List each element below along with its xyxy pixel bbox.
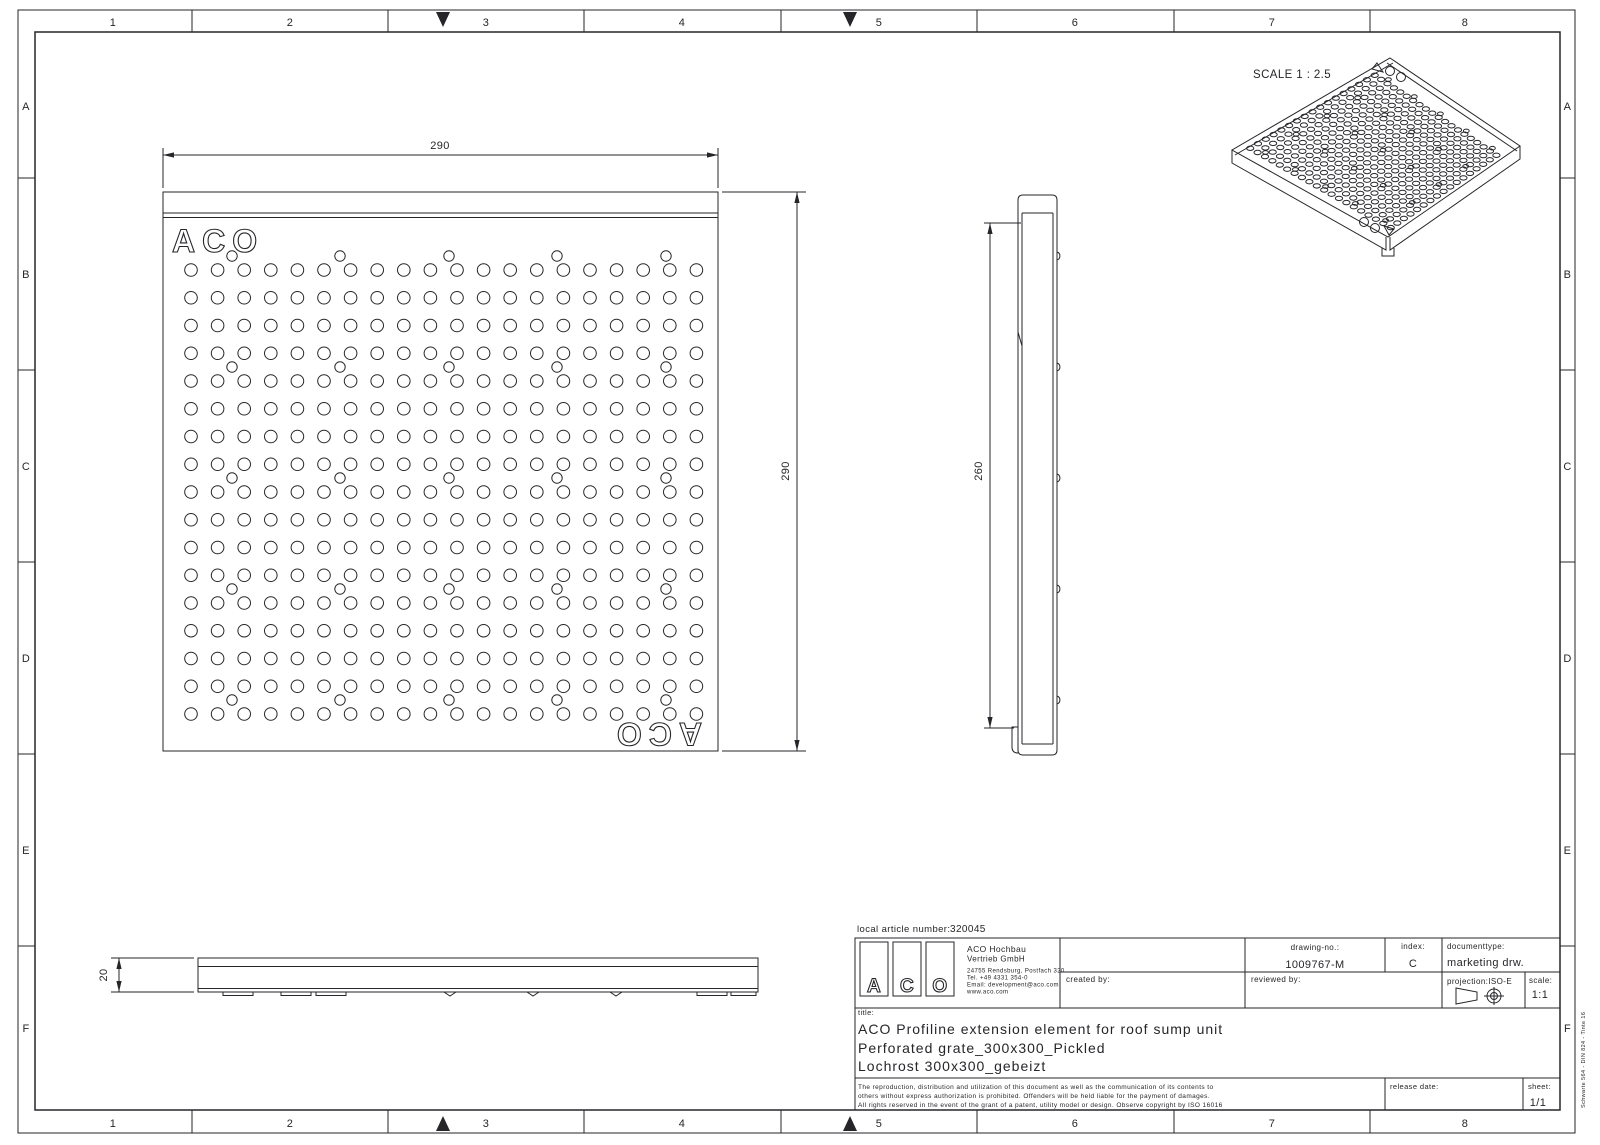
iso-hole xyxy=(1440,163,1447,167)
title-line: Perforated grate_300x300_Pickled xyxy=(858,1040,1106,1056)
iso-hole xyxy=(1395,107,1402,111)
hole xyxy=(477,708,490,721)
isometric-view: SCALE 1 : 2.5 xyxy=(1232,58,1520,256)
plot-stamp: Schwarte 564 - DIN 824 - Tinte 16 xyxy=(1581,1012,1587,1108)
border-column-label: 8 xyxy=(1462,1118,1469,1130)
hole xyxy=(557,597,570,610)
iso-hole xyxy=(1352,117,1359,121)
hole xyxy=(504,402,517,415)
side-view: 260 xyxy=(973,195,1060,755)
iso-hole xyxy=(1352,109,1359,113)
iso-hole xyxy=(1328,148,1335,152)
hole xyxy=(610,458,623,471)
hole xyxy=(690,597,703,610)
front-outline xyxy=(198,958,758,992)
iso-hole xyxy=(1447,132,1454,136)
iso-hole xyxy=(1335,179,1342,183)
iso-hole xyxy=(1392,195,1399,199)
hole xyxy=(211,624,224,637)
iso-hole xyxy=(1385,173,1392,177)
hole xyxy=(344,652,357,665)
hole xyxy=(557,291,570,304)
iso-hole xyxy=(1371,147,1378,151)
iso-hole xyxy=(1419,168,1426,172)
hole xyxy=(690,541,703,554)
hole xyxy=(398,347,411,360)
iso-hole xyxy=(1371,165,1378,169)
iso-hole xyxy=(1493,153,1500,157)
company-name: ACO Hochbau xyxy=(967,944,1026,954)
iso-hole xyxy=(1447,185,1454,189)
projection-label: projection:ISO-E xyxy=(1447,977,1512,986)
iso-hole xyxy=(1440,154,1447,158)
hole xyxy=(664,347,677,360)
hole xyxy=(584,680,597,693)
iso-scale-label: SCALE 1 : 2.5 xyxy=(1253,69,1331,81)
hole xyxy=(238,430,251,443)
iso-hole xyxy=(1284,150,1291,154)
hole xyxy=(451,291,464,304)
offset-hole xyxy=(335,473,345,483)
hole xyxy=(477,486,490,499)
iso-hole xyxy=(1262,137,1269,141)
hole xyxy=(584,541,597,554)
hole xyxy=(504,291,517,304)
hole xyxy=(610,319,623,332)
hole xyxy=(344,624,357,637)
hole xyxy=(371,486,384,499)
iso-hole xyxy=(1330,122,1337,126)
hole xyxy=(477,569,490,582)
hole xyxy=(424,402,437,415)
iso-logo-shape xyxy=(1397,73,1406,82)
hole xyxy=(690,319,703,332)
hole xyxy=(477,541,490,554)
iso-right-lip xyxy=(1390,146,1520,250)
iso-hole xyxy=(1269,150,1276,154)
iso-hole xyxy=(1406,151,1413,155)
iso-logo-shape xyxy=(1386,67,1395,76)
fold-mark-triangle xyxy=(436,12,450,27)
iso-hole xyxy=(1392,177,1399,181)
hole xyxy=(637,652,650,665)
iso-hole xyxy=(1466,171,1473,175)
iso-hole xyxy=(1427,129,1434,133)
iso-hole xyxy=(1299,140,1306,144)
hole xyxy=(318,652,331,665)
hole xyxy=(211,430,224,443)
legal-text-line: The reproduction, distribution and utili… xyxy=(858,1084,1213,1091)
hole xyxy=(185,513,198,526)
hole xyxy=(690,375,703,388)
iso-hole xyxy=(1393,212,1400,216)
hole xyxy=(584,291,597,304)
iso-hole xyxy=(1378,77,1385,81)
hole xyxy=(504,430,517,443)
hole xyxy=(637,513,650,526)
iso-hole xyxy=(1422,107,1429,111)
iso-hole xyxy=(1291,154,1298,158)
iso-hole xyxy=(1428,120,1435,124)
hole xyxy=(291,375,304,388)
iso-hole xyxy=(1328,175,1335,179)
iso-hole xyxy=(1403,94,1410,98)
dimension-value: 290 xyxy=(780,461,792,481)
legal-text-line: others without express authorization is … xyxy=(858,1093,1210,1100)
hole xyxy=(344,319,357,332)
title-line: ACO Profiline extension element for roof… xyxy=(858,1021,1223,1037)
iso-hole xyxy=(1415,111,1422,115)
iso-hole xyxy=(1410,98,1417,102)
iso-hole xyxy=(1324,109,1331,113)
hole xyxy=(344,347,357,360)
iso-hole xyxy=(1385,191,1392,195)
hole xyxy=(610,291,623,304)
border-column-label: 4 xyxy=(679,17,686,29)
hole xyxy=(291,680,304,693)
index-value: C xyxy=(1409,958,1417,970)
hole xyxy=(531,569,544,582)
iso-hole xyxy=(1473,158,1480,162)
iso-hole xyxy=(1371,182,1378,186)
offset-hole xyxy=(227,584,237,594)
hole xyxy=(211,347,224,360)
hole xyxy=(238,458,251,471)
iso-hole xyxy=(1453,163,1460,167)
hole xyxy=(291,513,304,526)
hole xyxy=(584,264,597,277)
hole xyxy=(557,680,570,693)
iso-hole xyxy=(1480,162,1487,166)
documenttype-value: marketing drw. xyxy=(1447,957,1524,969)
iso-hole xyxy=(1385,164,1392,168)
hole xyxy=(318,597,331,610)
iso-hole xyxy=(1399,190,1406,194)
front-foot-tab xyxy=(316,992,346,996)
hole xyxy=(265,680,278,693)
dimension-thickness: 20 xyxy=(98,958,194,992)
offset-hole xyxy=(552,584,562,594)
iso-hole xyxy=(1370,82,1377,86)
front-foot-tab xyxy=(731,992,756,996)
iso-hole xyxy=(1392,142,1399,146)
border-column-label: 2 xyxy=(287,1118,294,1130)
hole xyxy=(318,319,331,332)
iso-hole xyxy=(1335,153,1342,157)
iso-hole xyxy=(1328,192,1335,196)
plan-logo-text: ACO xyxy=(172,223,264,259)
iso-hole xyxy=(1400,129,1407,133)
hole xyxy=(344,513,357,526)
iso-hole xyxy=(1434,124,1441,128)
offset-hole xyxy=(661,695,671,705)
iso-hole xyxy=(1342,157,1349,161)
hole xyxy=(584,375,597,388)
iso-hole xyxy=(1390,86,1397,90)
iso-hole xyxy=(1379,213,1386,217)
iso-hole xyxy=(1379,204,1386,208)
hole xyxy=(398,708,411,721)
iso-hole xyxy=(1320,170,1327,174)
hole xyxy=(451,402,464,415)
iso-hole xyxy=(1421,124,1428,128)
iso-hole xyxy=(1343,148,1350,152)
front-foot-tab xyxy=(281,992,311,996)
hole xyxy=(531,541,544,554)
hole xyxy=(557,264,570,277)
hole xyxy=(238,597,251,610)
hole xyxy=(291,541,304,554)
hole xyxy=(238,291,251,304)
hole xyxy=(265,708,278,721)
iso-hole xyxy=(1379,125,1386,129)
hole xyxy=(185,708,198,721)
iso-hole xyxy=(1413,155,1420,159)
border-column-label: 5 xyxy=(876,1118,883,1130)
hole xyxy=(451,486,464,499)
iso-hole xyxy=(1343,139,1350,143)
iso-hole xyxy=(1364,161,1371,165)
hole xyxy=(185,402,198,415)
hole xyxy=(584,319,597,332)
hole xyxy=(398,624,411,637)
hole xyxy=(690,291,703,304)
iso-hole xyxy=(1314,149,1321,153)
created-by-label: created by: xyxy=(1066,975,1110,984)
hole xyxy=(238,569,251,582)
hole xyxy=(371,513,384,526)
iso-hole xyxy=(1400,208,1407,212)
iso-hole xyxy=(1350,135,1357,139)
iso-hole xyxy=(1357,148,1364,152)
iso-hole xyxy=(1315,123,1322,127)
hole xyxy=(185,652,198,665)
iso-hole xyxy=(1367,108,1374,112)
iso-hole xyxy=(1440,137,1447,141)
hole xyxy=(584,569,597,582)
arrowhead xyxy=(163,152,174,157)
hole xyxy=(451,430,464,443)
hole xyxy=(610,375,623,388)
hole xyxy=(557,569,570,582)
hole xyxy=(451,708,464,721)
iso-hole xyxy=(1372,217,1379,221)
iso-hole xyxy=(1446,176,1453,180)
hole xyxy=(211,402,224,415)
hole xyxy=(371,347,384,360)
hole xyxy=(477,291,490,304)
hole xyxy=(610,624,623,637)
hole xyxy=(318,375,331,388)
iso-hole xyxy=(1399,155,1406,159)
hole xyxy=(504,652,517,665)
iso-hole xyxy=(1357,156,1364,160)
iso-hole xyxy=(1387,121,1394,125)
iso-hole xyxy=(1284,141,1291,145)
hole xyxy=(265,486,278,499)
hole xyxy=(344,708,357,721)
hole xyxy=(371,624,384,637)
hole xyxy=(371,652,384,665)
border-row-label: E xyxy=(1564,845,1572,857)
iso-hole xyxy=(1349,178,1356,182)
iso-hole xyxy=(1446,167,1453,171)
iso-hole xyxy=(1335,188,1342,192)
border-column-label: 6 xyxy=(1072,1118,1079,1130)
iso-hole xyxy=(1349,187,1356,191)
iso-hole xyxy=(1454,128,1461,132)
hole xyxy=(451,458,464,471)
iso-hole xyxy=(1299,149,1306,153)
iso-hole xyxy=(1329,131,1336,135)
iso-hole xyxy=(1306,145,1313,149)
iso-hole xyxy=(1360,104,1367,108)
iso-hole xyxy=(1378,160,1385,164)
iso-hole xyxy=(1372,130,1379,134)
iso-hole xyxy=(1407,212,1414,216)
hole xyxy=(424,652,437,665)
iso-hole xyxy=(1308,118,1315,122)
iso-hole xyxy=(1426,163,1433,167)
iso-hole xyxy=(1453,180,1460,184)
cad-drawing-sheet: 1122334455667788AABBCCDDEEFF ACO ACO 290… xyxy=(0,0,1600,1145)
front-notch xyxy=(527,992,539,996)
hole xyxy=(211,597,224,610)
iso-hole xyxy=(1407,125,1414,129)
hole xyxy=(664,597,677,610)
iso-hole xyxy=(1382,99,1389,103)
hole xyxy=(610,347,623,360)
hole xyxy=(637,264,650,277)
offset-hole xyxy=(444,473,454,483)
hole xyxy=(531,708,544,721)
hole xyxy=(584,458,597,471)
iso-hole xyxy=(1406,194,1413,198)
iso-hole xyxy=(1307,127,1314,131)
offset-hole xyxy=(444,251,454,261)
iso-hole xyxy=(1276,154,1283,158)
iso-hole xyxy=(1378,169,1385,173)
hole xyxy=(238,486,251,499)
iso-hole xyxy=(1328,166,1335,170)
hole xyxy=(584,486,597,499)
company-phone: Tel. +49 4331 354-0 xyxy=(967,976,1028,982)
hole xyxy=(637,680,650,693)
hole xyxy=(451,680,464,693)
iso-hole xyxy=(1384,82,1391,86)
iso-hole xyxy=(1473,149,1480,153)
scale-value: 1:1 xyxy=(1532,989,1549,1001)
iso-hole xyxy=(1337,126,1344,130)
hole xyxy=(424,513,437,526)
dimension-height: 290 xyxy=(722,192,806,751)
border-column-label: 7 xyxy=(1269,1118,1276,1130)
iso-hole xyxy=(1291,171,1298,175)
iso-hole xyxy=(1467,145,1474,149)
border-column-label: 5 xyxy=(876,17,883,29)
iso-hole xyxy=(1369,91,1376,95)
hole xyxy=(531,375,544,388)
iso-hole xyxy=(1375,95,1382,99)
side-bottom-lip xyxy=(1012,727,1018,753)
hole xyxy=(477,624,490,637)
hole xyxy=(664,375,677,388)
hole xyxy=(451,347,464,360)
iso-offset-hole xyxy=(1386,78,1392,82)
iso-hole xyxy=(1374,104,1381,108)
hole xyxy=(424,458,437,471)
iso-hole xyxy=(1306,180,1313,184)
plan-logo-text-rotated: ACO xyxy=(610,716,702,752)
iso-hole xyxy=(1372,208,1379,212)
hole xyxy=(690,430,703,443)
hole xyxy=(610,652,623,665)
iso-hole xyxy=(1376,86,1383,90)
iso-hole xyxy=(1300,132,1307,136)
iso-hole xyxy=(1298,175,1305,179)
iso-hole xyxy=(1321,153,1328,157)
front-view: 20 xyxy=(98,958,758,996)
iso-hole xyxy=(1342,192,1349,196)
iso-hole xyxy=(1393,204,1400,208)
iso-hole xyxy=(1320,162,1327,166)
hole xyxy=(211,375,224,388)
hole xyxy=(477,458,490,471)
legal-text-line: All rights reserved in the event of the … xyxy=(858,1102,1223,1109)
hole xyxy=(398,680,411,693)
company-logo: A C O xyxy=(860,942,954,997)
hole xyxy=(610,541,623,554)
border-row-label: D xyxy=(22,653,30,665)
hole xyxy=(451,597,464,610)
iso-hole xyxy=(1351,126,1358,130)
hole xyxy=(238,375,251,388)
hole xyxy=(371,708,384,721)
hole xyxy=(185,319,198,332)
hole xyxy=(318,458,331,471)
hole xyxy=(531,513,544,526)
iso-hole xyxy=(1400,216,1407,220)
iso-hole xyxy=(1364,169,1371,173)
hole xyxy=(265,458,278,471)
hole xyxy=(371,264,384,277)
iso-hole xyxy=(1343,131,1350,135)
hole xyxy=(371,291,384,304)
hole xyxy=(291,402,304,415)
offset-hole xyxy=(661,584,671,594)
hole xyxy=(690,486,703,499)
hole xyxy=(584,652,597,665)
iso-hole xyxy=(1347,96,1354,100)
iso-hole xyxy=(1392,186,1399,190)
hole xyxy=(398,291,411,304)
hole xyxy=(291,319,304,332)
iso-hole xyxy=(1344,122,1351,126)
hole xyxy=(265,624,278,637)
offset-hole xyxy=(661,362,671,372)
hole xyxy=(557,708,570,721)
iso-hole xyxy=(1413,146,1420,150)
iso-hole xyxy=(1416,103,1423,107)
dimension-side-height: 260 xyxy=(973,223,1021,728)
hole xyxy=(318,486,331,499)
release-date-label: release date: xyxy=(1390,1082,1439,1091)
border-column-label: 3 xyxy=(483,1118,490,1130)
hole xyxy=(451,264,464,277)
hole xyxy=(424,597,437,610)
iso-hole xyxy=(1392,151,1399,155)
iso-hole xyxy=(1467,136,1474,140)
